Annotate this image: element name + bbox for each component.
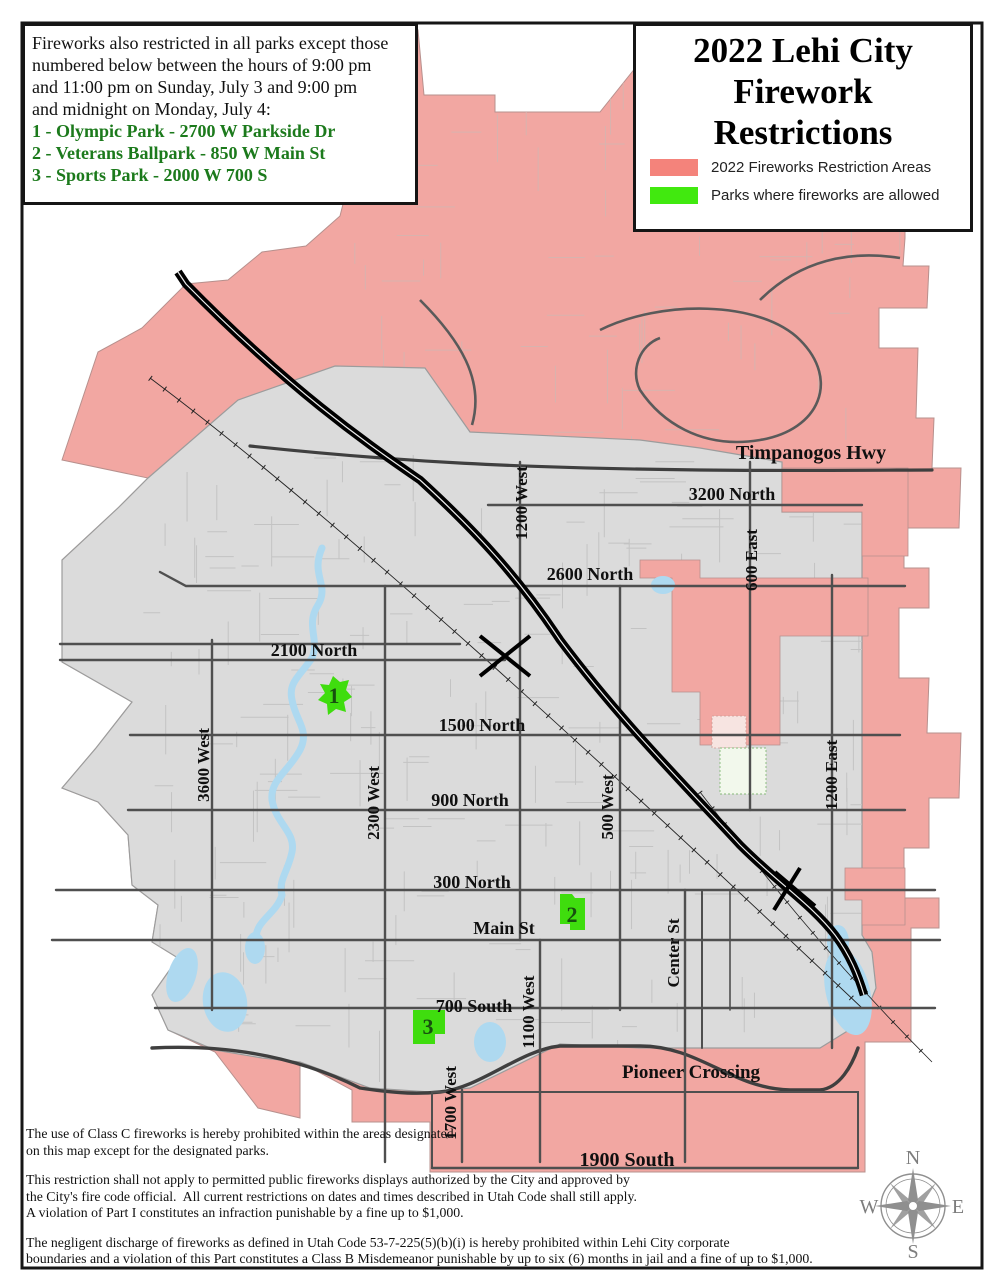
footnote-line: A violation of Part I constitutes an inf… (26, 1205, 813, 1222)
pond (474, 1022, 506, 1062)
compass-w: W (860, 1196, 879, 1218)
footnotes: The use of Class C fireworks is hereby p… (26, 1126, 813, 1280)
label-2300-west: 2300 West (364, 766, 383, 840)
park-1-number: 1 (329, 683, 340, 708)
stippled-parcel-pink (712, 716, 746, 748)
stippled-parcel-green (720, 748, 766, 794)
label-1200-east: 1200 East (822, 739, 841, 810)
parks-swatch (650, 187, 698, 204)
label-500-west: 500 West (598, 774, 617, 840)
restriction-swatch (650, 159, 698, 176)
label-1200-west: 1200 West (512, 466, 531, 540)
info-park-2: 2 - Veterans Ballpark - 850 W Main St (32, 142, 409, 164)
info-park-1: 1 - Olympic Park - 2700 W Parkside Dr (32, 120, 409, 142)
label-timpanogos-hwy: Timpanogos Hwy (736, 442, 886, 464)
label-1500-north: 1500 North (439, 715, 526, 735)
restriction-legend-label: 2022 Fireworks Restriction Areas (711, 159, 931, 176)
label-700-south: 700 South (436, 996, 513, 1016)
label-300-north: 300 North (433, 872, 511, 892)
info-box: Fireworks also restricted in all parks e… (22, 23, 418, 205)
map-sheet: 1 2 3 Timpanogos Hwy 3200 North 2600 Nor… (0, 0, 989, 1280)
legend-row-parks: Parks where fireworks are allowed (650, 187, 970, 204)
footnote-line: on this map except for the designated pa… (26, 1143, 813, 1160)
map-title-line: Firework (636, 71, 970, 112)
info-intro-line: numbered below between the hours of 9:00… (32, 54, 409, 76)
lake (245, 932, 265, 964)
park-3-number: 3 (423, 1014, 434, 1039)
label-2100-north: 2100 North (271, 640, 358, 660)
label-600-east: 600 East (742, 529, 761, 591)
footnote-line: boundaries and a violation of this Part … (26, 1251, 813, 1268)
label-2600-north: 2600 North (547, 564, 634, 584)
compass-e: E (952, 1196, 964, 1218)
legend: 2022 Fireworks Restriction Areas Parks w… (636, 159, 970, 204)
label-3600-west: 3600 West (194, 728, 213, 802)
label-1100-west: 1100 West (519, 975, 538, 1048)
label-center-st: Center St (664, 918, 683, 987)
map-title-line: Restrictions (636, 112, 970, 153)
label-main-st: Main St (473, 918, 535, 938)
footnote-line: The use of Class C fireworks is hereby p… (26, 1126, 813, 1143)
footnote-line: the City's fire code official. All curre… (26, 1189, 813, 1206)
label-pioneer-crossing: Pioneer Crossing (622, 1062, 761, 1083)
footnote-line: This restriction shall not apply to perm… (26, 1172, 813, 1189)
info-intro-line: and 11:00 pm on Sunday, July 3 and 9:00 … (32, 76, 409, 98)
compass-rose: N S W E (860, 1147, 965, 1263)
legend-row-restriction: 2022 Fireworks Restriction Areas (650, 159, 970, 176)
info-park-3: 3 - Sports Park - 2000 W 700 S (32, 164, 409, 186)
label-3200-north: 3200 North (689, 484, 776, 504)
info-intro-line: and midnight on Monday, July 4: (32, 98, 409, 120)
compass-n: N (906, 1147, 920, 1169)
footnote-line: The negligent discharge of fireworks as … (26, 1235, 813, 1252)
label-900-north: 900 North (431, 790, 509, 810)
map-title-line: 2022 Lehi City (636, 30, 970, 71)
park-2-number: 2 (567, 902, 578, 927)
info-intro-line: Fireworks also restricted in all parks e… (32, 32, 409, 54)
compass-s: S (907, 1241, 918, 1263)
parks-legend-label: Parks where fireworks are allowed (711, 187, 939, 204)
footnote-1: The use of Class C fireworks is hereby p… (26, 1126, 813, 1159)
footnote-2: This restriction shall not apply to perm… (26, 1172, 813, 1222)
footnote-3: The negligent discharge of fireworks as … (26, 1235, 813, 1268)
title-box: 2022 Lehi City Firework Restrictions 202… (633, 23, 973, 232)
